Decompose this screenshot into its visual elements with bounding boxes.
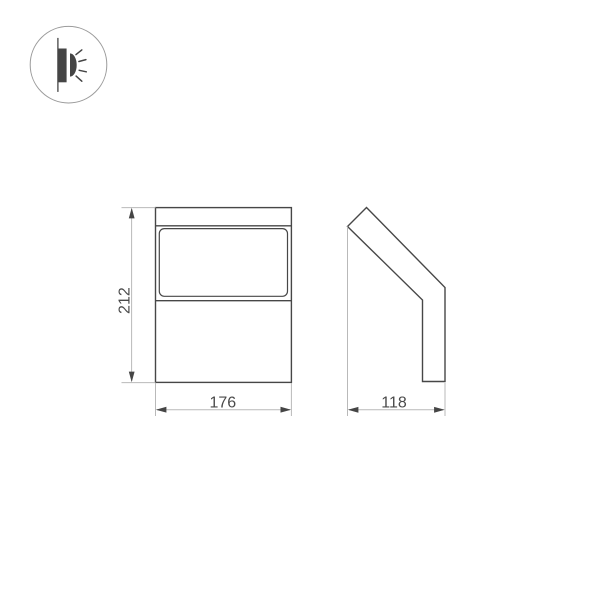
- svg-text:118: 118: [381, 394, 407, 411]
- svg-text:212: 212: [116, 287, 133, 314]
- svg-text:176: 176: [209, 394, 236, 411]
